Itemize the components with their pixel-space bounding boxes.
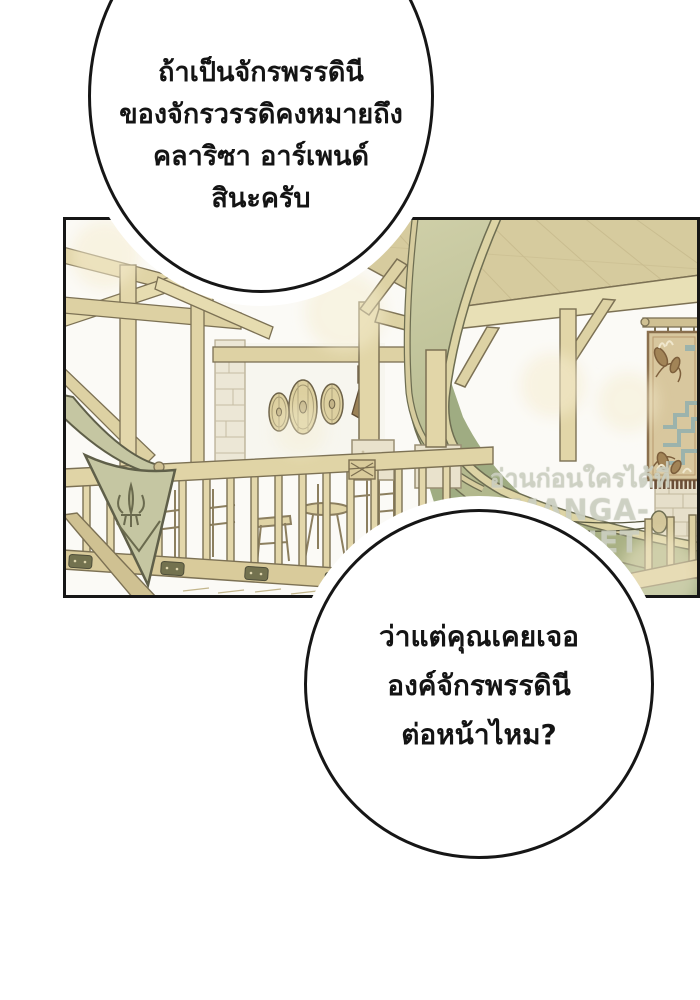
bubble1-line2: ของจักรวรรดิคงหมายถึง — [91, 94, 431, 136]
bubble1-line3: คลาริซา อาร์เพนด์ — [91, 136, 431, 178]
manga-page: อ่านก่อนใครได้ที่ MANGA-LC.NET ถ้าเป็นจั… — [0, 0, 700, 1000]
bubble2-line3: ต่อหน้าไหม? — [307, 710, 651, 759]
shield-small-right — [321, 384, 343, 424]
speech-bubble-bottom: ว่าแต่คุณเคยเจอ องค์จักรพรรดินี ต่อหน้าไ… — [304, 509, 654, 859]
bubble1-line1: ถ้าเป็นจักรพรรดินี — [91, 52, 431, 94]
tapestry-rod — [643, 318, 700, 327]
bubble2-line1: ว่าแต่คุณเคยเจอ — [307, 612, 651, 661]
bubble2-line2: องค์จักรพรรดินี — [307, 661, 651, 710]
bubble1-line4: สินะครับ — [91, 178, 431, 220]
speech-bubble-top-text: ถ้าเป็นจักรพรรดินี ของจักรวรรดิคงหมายถึง… — [91, 52, 431, 220]
speech-bubble-bottom-text: ว่าแต่คุณเคยเจอ องค์จักรพรรดินี ต่อหน้าไ… — [307, 612, 651, 759]
watermark-thai-line: อ่านก่อนใครได้ที่ — [455, 464, 700, 494]
